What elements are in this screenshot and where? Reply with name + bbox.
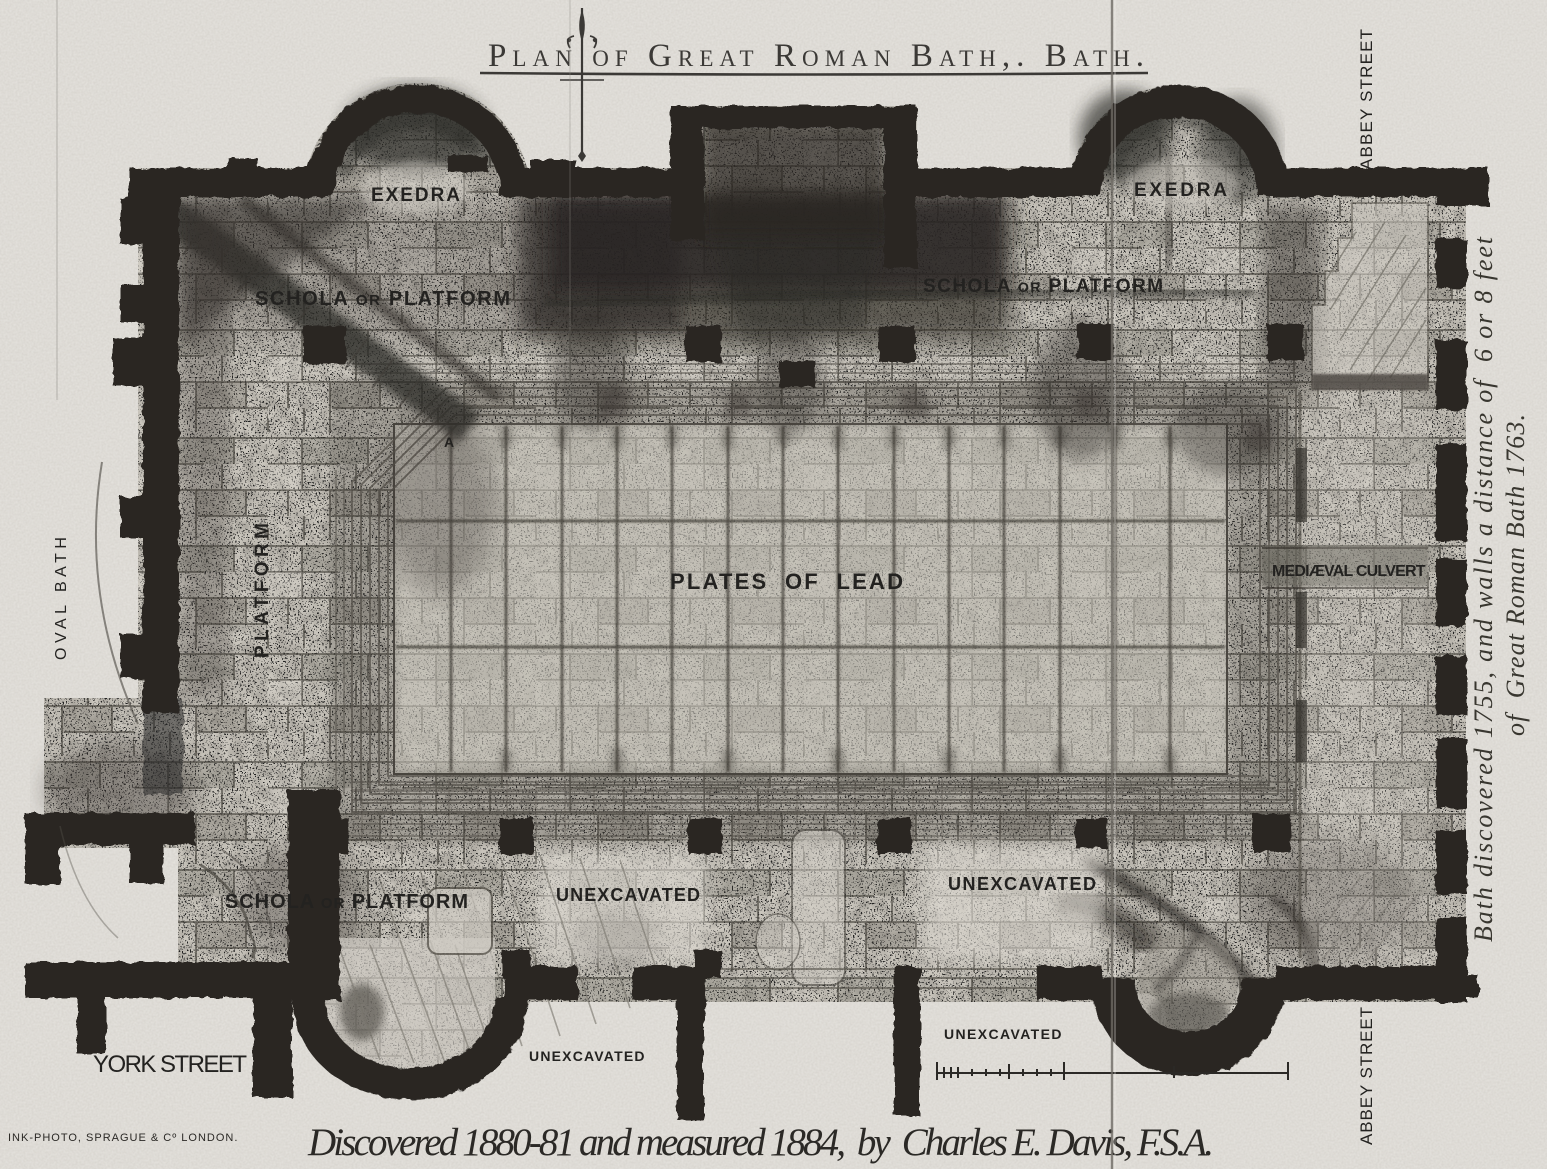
svg-text:Discovered 1880-81 and measure: Discovered 1880-81 and measured 1884, by… bbox=[307, 1121, 1214, 1164]
svg-text:OVAL BATH: OVAL BATH bbox=[53, 534, 70, 660]
svg-text:SCHOLA OR PLATFORM: SCHOLA OR PLATFORM bbox=[923, 276, 1165, 297]
svg-text:UNEXCAVATED: UNEXCAVATED bbox=[556, 885, 702, 905]
svg-text:SCHOLA OR PLATFORM: SCHOLA OR PLATFORM bbox=[255, 288, 512, 310]
svg-text:SCHOLA OR PLATFORM: SCHOLA OR PLATFORM bbox=[225, 891, 470, 913]
svg-text:ABBEY STREET: ABBEY STREET bbox=[1357, 1005, 1376, 1145]
svg-text:PLATFORM: PLATFORM bbox=[252, 520, 273, 658]
svg-text:EXEDRA: EXEDRA bbox=[371, 185, 464, 206]
svg-text:INK-PHOTO, SPRAGUE & Cº LONDON: INK-PHOTO, SPRAGUE & Cº LONDON. bbox=[8, 1132, 238, 1144]
svg-text:A: A bbox=[444, 434, 454, 450]
svg-text:UNEXCAVATED: UNEXCAVATED bbox=[948, 874, 1098, 894]
svg-text:YORK STREET: YORK STREET bbox=[93, 1051, 251, 1078]
svg-text:MEDIÆVAL CULVERT: MEDIÆVAL CULVERT bbox=[1272, 563, 1426, 580]
svg-text:UNEXCAVATED: UNEXCAVATED bbox=[529, 1048, 646, 1064]
svg-text:of Great Roman Bath 1763.: of Great Roman Bath 1763. bbox=[1501, 414, 1530, 736]
svg-text:Bath discovered 1755, and wall: Bath discovered 1755, and walls a distan… bbox=[1469, 236, 1498, 942]
svg-text:ABBEY STREET: ABBEY STREET bbox=[1357, 27, 1376, 170]
svg-text:Plan of Great Roman Bath,. Bat: Plan of Great Roman Bath,. Bath. bbox=[488, 38, 1148, 74]
svg-text:PLATES OF LEAD: PLATES OF LEAD bbox=[670, 569, 906, 594]
svg-text:EXEDRA: EXEDRA bbox=[1134, 180, 1231, 201]
svg-text:UNEXCAVATED: UNEXCAVATED bbox=[944, 1026, 1063, 1042]
